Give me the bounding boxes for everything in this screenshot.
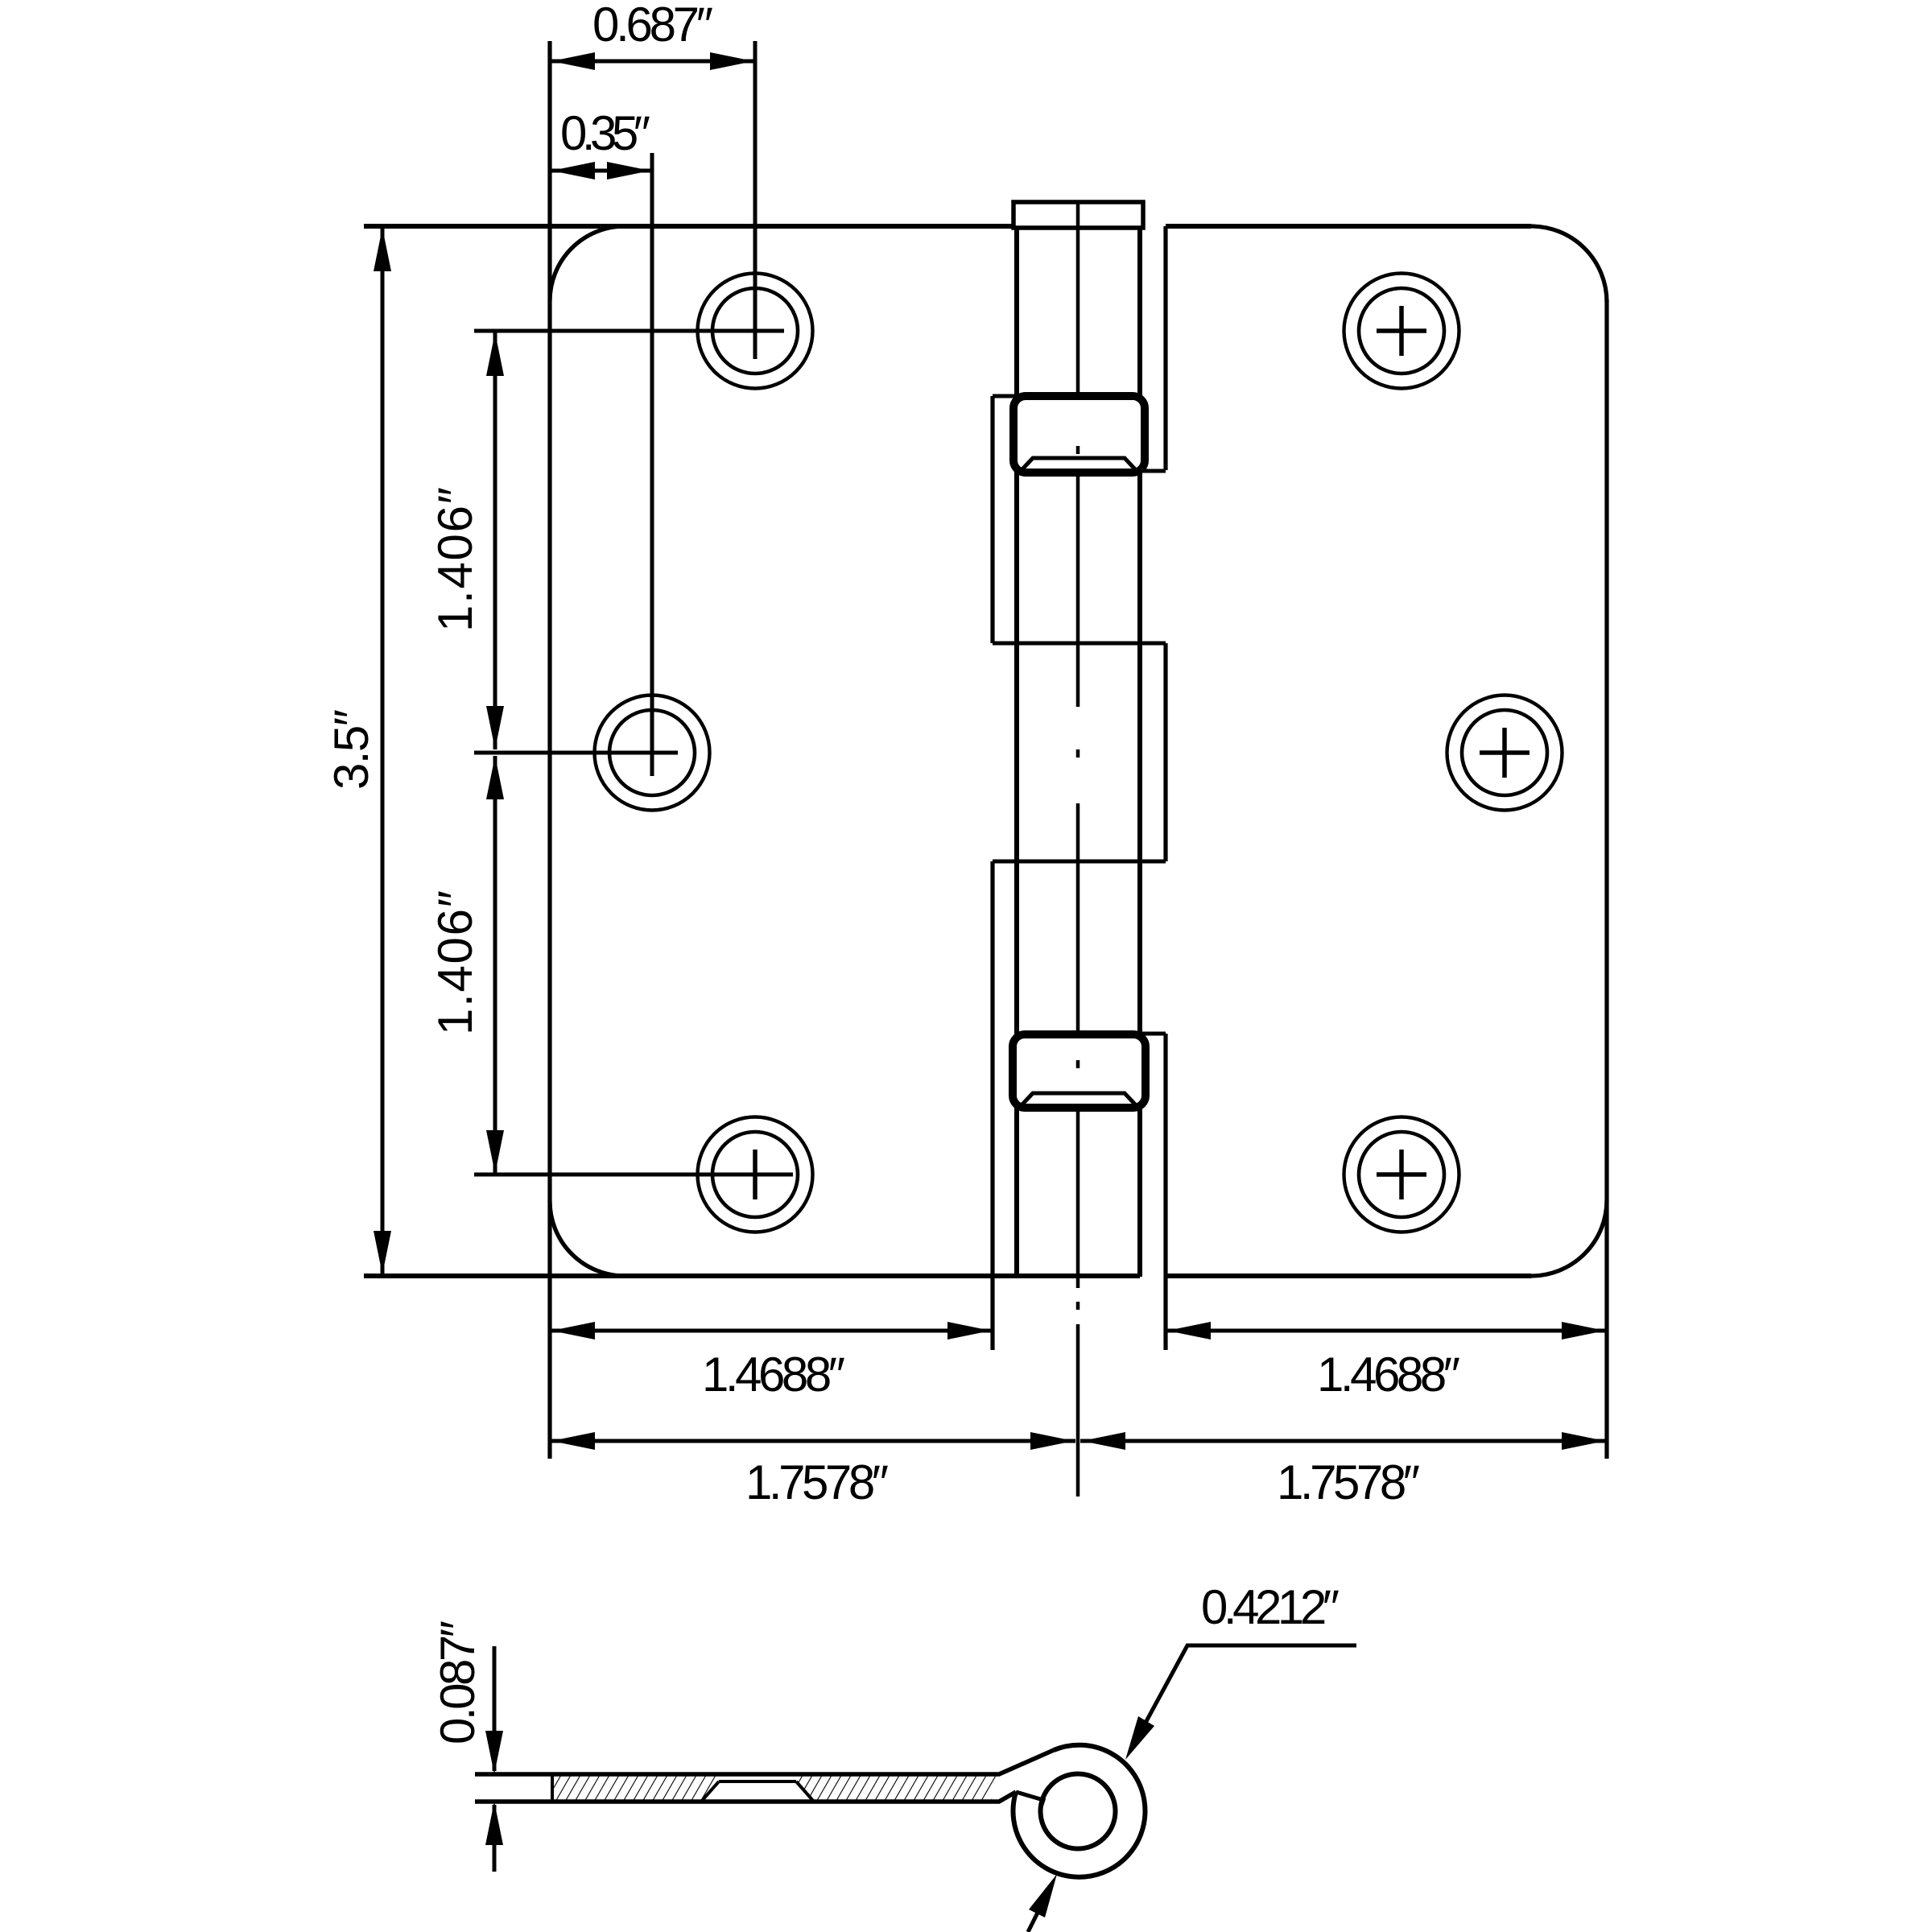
svg-text:1.7578″: 1.7578″ — [1277, 1455, 1420, 1509]
svg-text:1.4688″: 1.4688″ — [702, 1348, 845, 1402]
svg-text:0.4212″: 0.4212″ — [1201, 1580, 1340, 1634]
svg-text:0.35″: 0.35″ — [560, 106, 650, 160]
svg-text:0.087″: 0.087″ — [431, 1620, 485, 1744]
svg-text:1.7578″: 1.7578″ — [745, 1455, 889, 1509]
svg-text:1.406″: 1.406″ — [428, 487, 482, 632]
svg-text:1.4688″: 1.4688″ — [1317, 1348, 1460, 1402]
svg-text:1.406″: 1.406″ — [428, 890, 482, 1035]
svg-text:3.5″: 3.5″ — [324, 709, 378, 790]
svg-text:0.687″: 0.687″ — [592, 0, 713, 52]
